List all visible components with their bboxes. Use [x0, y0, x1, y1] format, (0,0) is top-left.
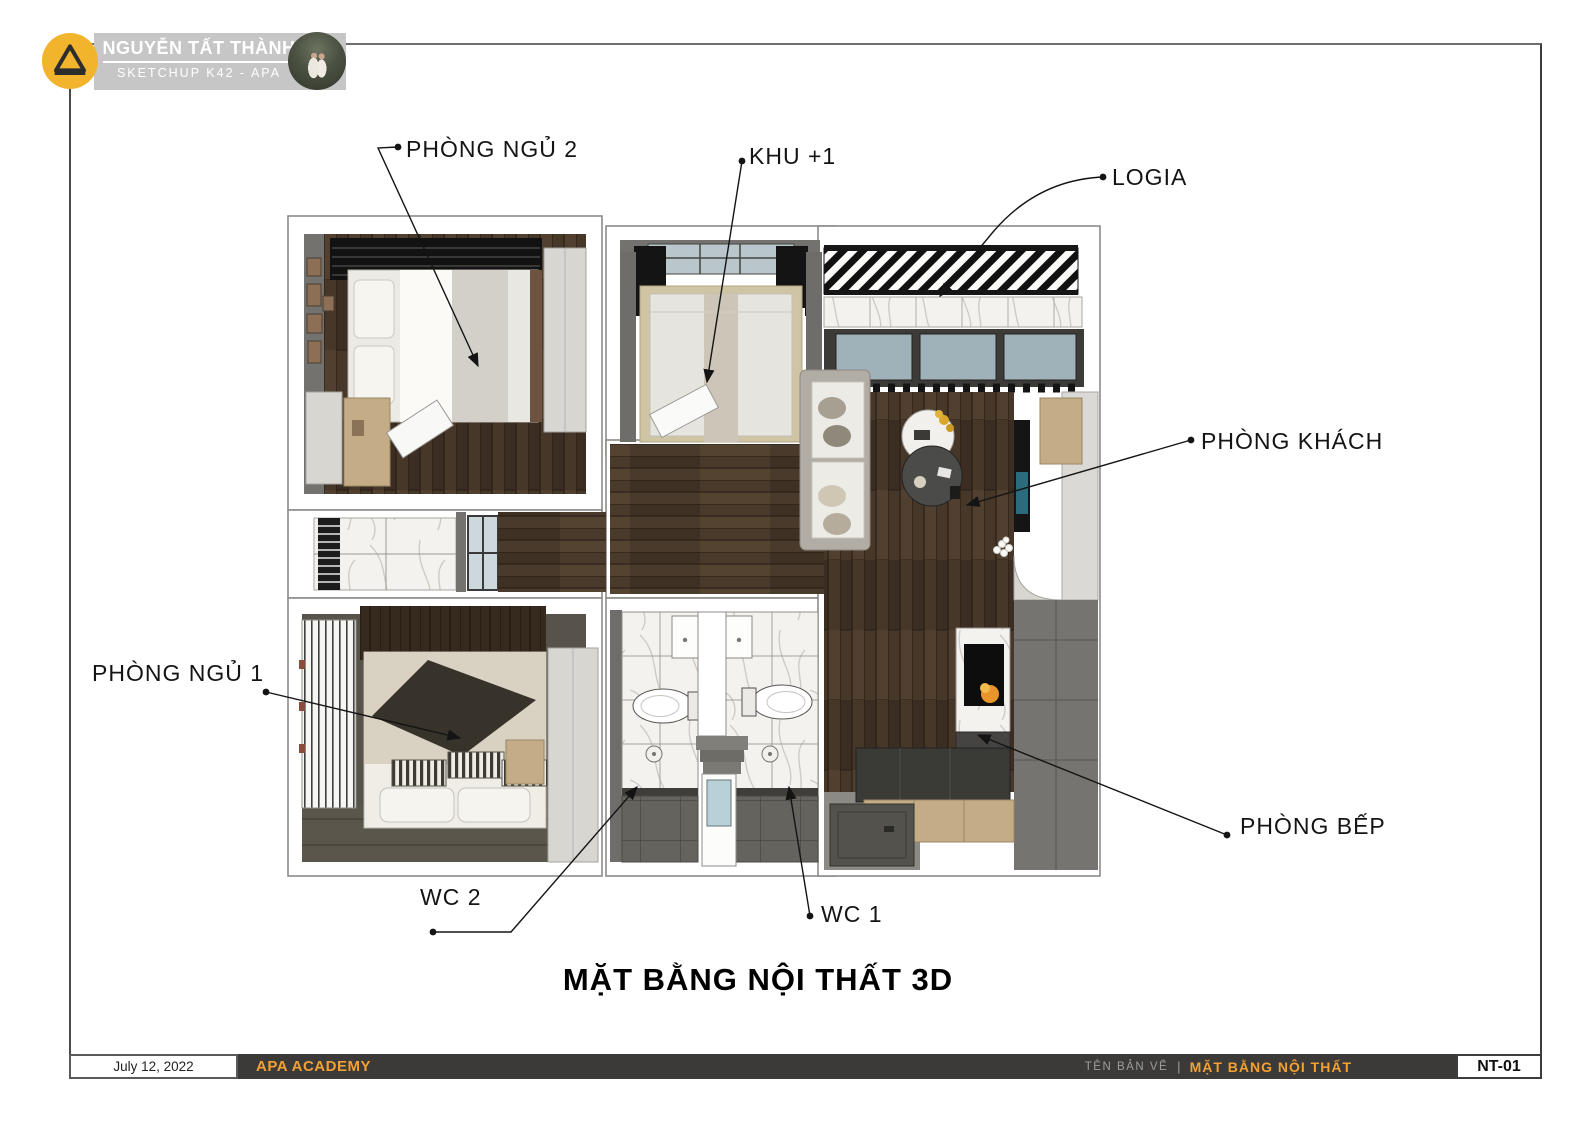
title-block-bar: APA ACADEMY TÊN BẢN VẼ | MẶT BẰNG NỘI TH… — [238, 1054, 1456, 1079]
khu-plus-1 — [620, 240, 822, 442]
company-name: APA ACADEMY — [256, 1058, 371, 1075]
hallway — [314, 512, 606, 592]
instructor-avatar — [288, 32, 346, 90]
kitchen — [824, 598, 1098, 870]
wc-2 — [622, 612, 702, 862]
label-wc-1: WC 1 — [821, 901, 883, 927]
drawing-sheet: PHÒNG NGỦ 2 KHU +1 LOGIA PHÒNG KHÁCH PHÒ… — [0, 0, 1587, 1122]
drawing-name: MẶT BẰNG NỘI THẤT — [1190, 1059, 1352, 1075]
bedroom-2 — [304, 234, 586, 494]
hall-floor — [610, 444, 832, 594]
logia — [824, 245, 1084, 388]
label-phong-ngu-2: PHÒNG NGỦ 2 — [406, 136, 578, 162]
label-phong-bep: PHÒNG BẾP — [1240, 813, 1386, 839]
sheet-number: NT-01 — [1456, 1054, 1542, 1079]
brand-subtitle: SKETCHUP K42 - APA — [102, 66, 296, 80]
label-phong-khach: PHÒNG KHÁCH — [1201, 428, 1383, 454]
label-logia: LOGIA — [1112, 164, 1187, 190]
brand-name: NGUYỄN TẤT THÀNH — [103, 38, 296, 63]
label-wc-2: WC 2 — [420, 884, 482, 910]
wc-block — [610, 610, 818, 866]
brand-banner: NGUYỄN TẤT THÀNH SKETCHUP K42 - APA — [94, 33, 346, 90]
label-khu-plus-1: KHU +1 — [749, 143, 836, 169]
separator: | — [1177, 1059, 1180, 1074]
plan-title: MẶT BẰNG NỘI THẤT 3D — [548, 962, 968, 998]
date-box: July 12, 2022 — [69, 1054, 238, 1079]
apa-triangle-icon — [42, 33, 98, 89]
bedroom-1 — [299, 606, 598, 862]
drawing-name-label: TÊN BẢN VẼ — [1085, 1061, 1168, 1073]
title-block: July 12, 2022 APA ACADEMY TÊN BẢN VẼ | M… — [69, 1054, 1542, 1079]
label-phong-ngu-1: PHÒNG NGỦ 1 — [92, 660, 264, 686]
